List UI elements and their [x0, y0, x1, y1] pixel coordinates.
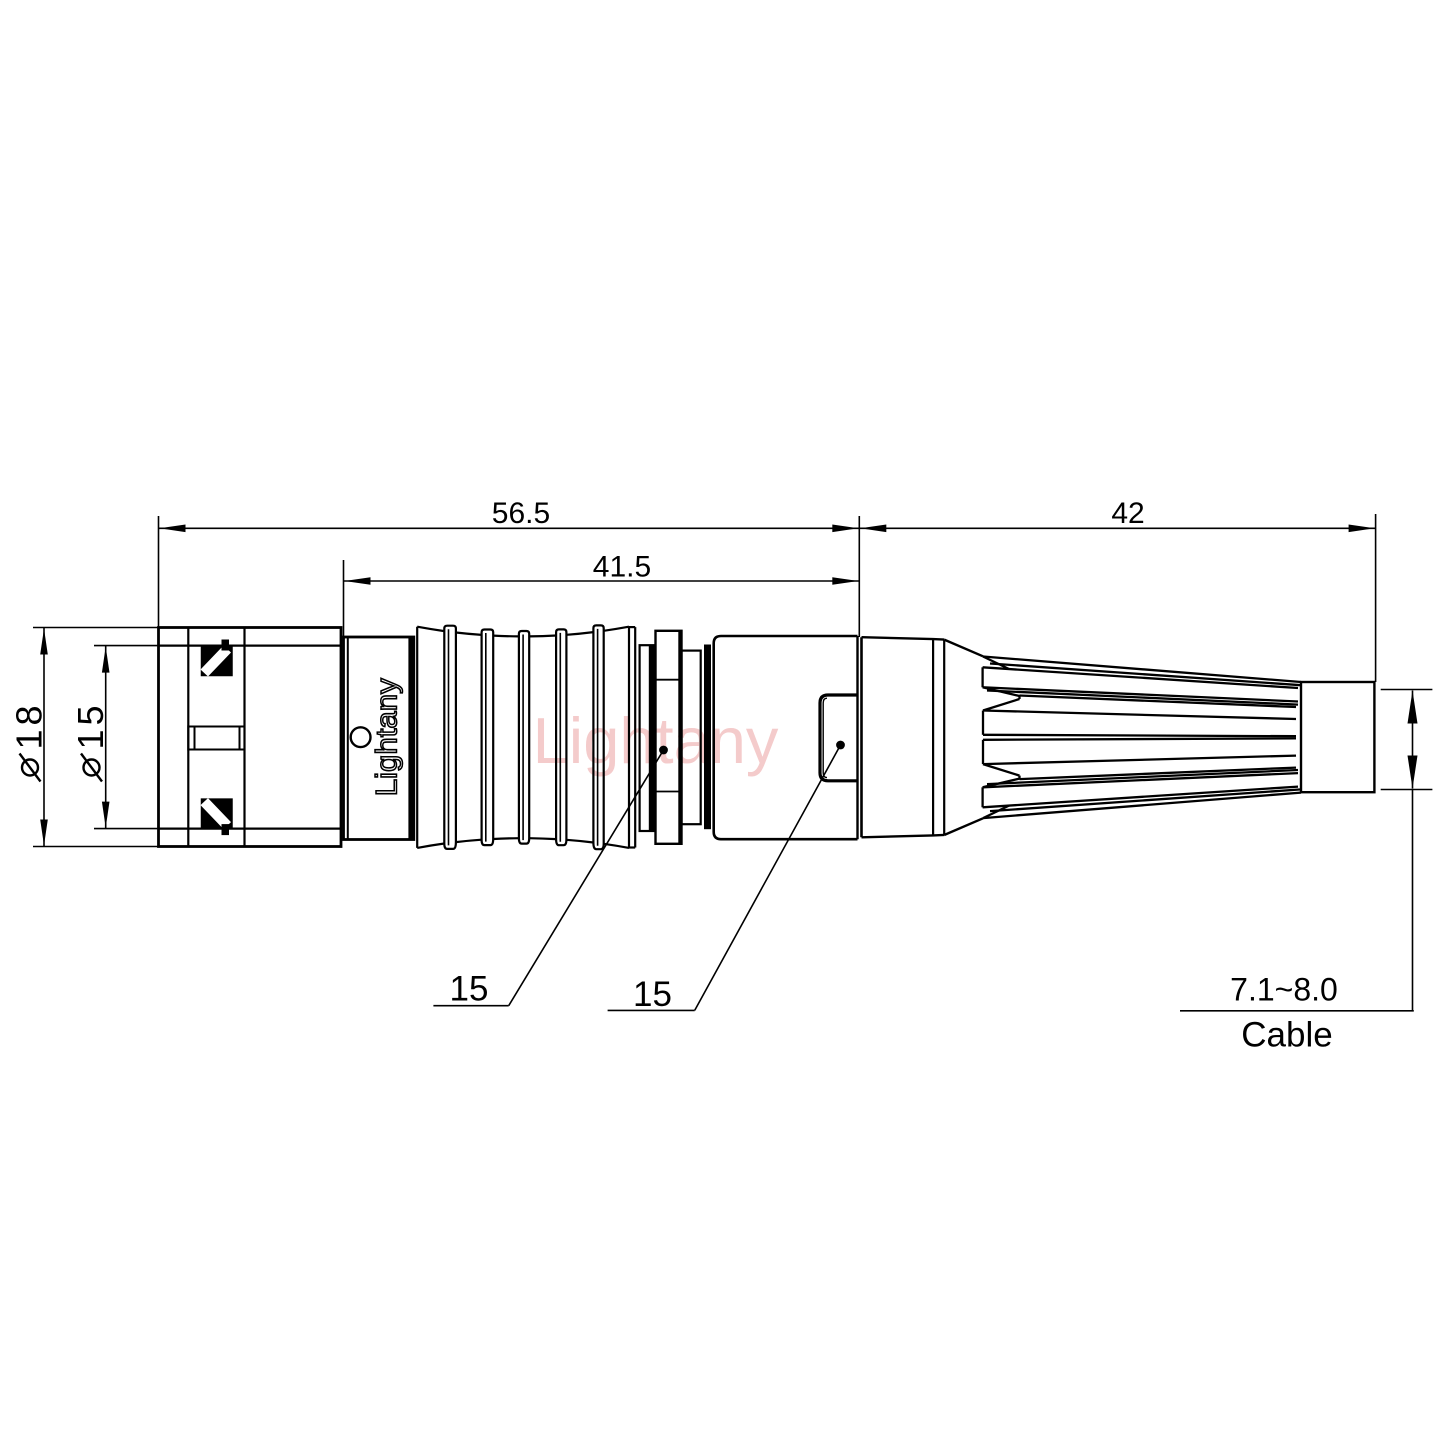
- svg-text:15: 15: [70, 701, 111, 749]
- svg-text:56.5: 56.5: [492, 497, 550, 530]
- svg-text:7.1~8.0: 7.1~8.0: [1230, 972, 1338, 1008]
- svg-text:Lightany: Lightany: [533, 704, 779, 777]
- svg-text:42: 42: [1111, 497, 1144, 530]
- svg-text:41.5: 41.5: [593, 551, 651, 584]
- svg-text:Cable: Cable: [1241, 1016, 1332, 1055]
- svg-text:15: 15: [450, 970, 489, 1009]
- svg-text:18: 18: [9, 701, 50, 749]
- svg-text:Lightany: Lightany: [371, 678, 404, 796]
- svg-text:15: 15: [633, 975, 672, 1014]
